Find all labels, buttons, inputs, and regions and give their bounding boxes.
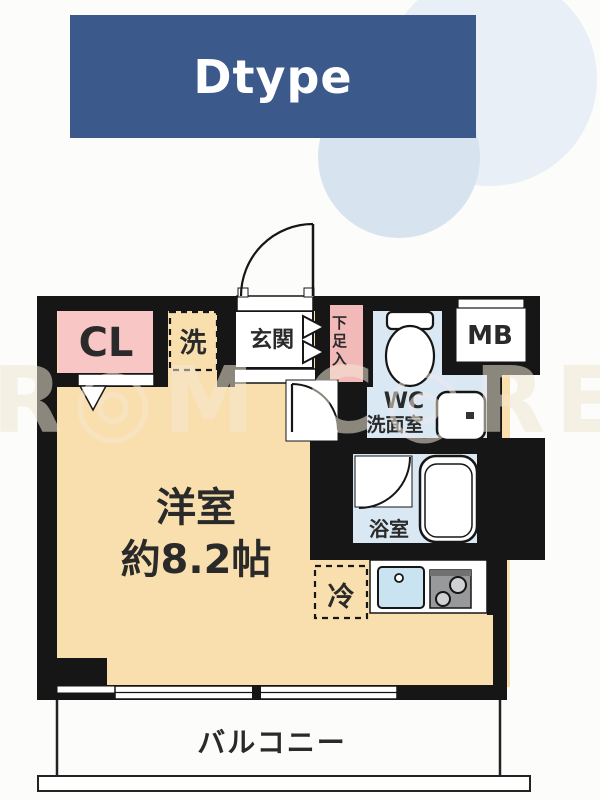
stove-icon <box>430 570 471 608</box>
label-bathroom: 浴室 <box>369 517 409 541</box>
floorplan-drawing: CL 洗 玄関 下足入 WC 洗面室 MB 浴室 冷 洋室 約8.2帖 バルコニ… <box>0 0 600 800</box>
kitchen-sink-icon <box>378 567 424 608</box>
bathroom-door <box>355 456 412 508</box>
label-main-room-size: 約8.2帖 <box>121 537 272 583</box>
watermark-text: R◎M C◎RE <box>0 347 600 454</box>
label-balcony: バルコニー <box>197 726 346 759</box>
entrance-door-swing-arc <box>241 224 313 296</box>
label-main-room: 洋室 <box>156 485 236 531</box>
label-fridge: 冷 <box>328 582 355 613</box>
bathtub-icon <box>420 456 477 542</box>
kitchen-counter <box>370 560 487 613</box>
meter-box-door <box>458 299 524 308</box>
entrance-door <box>237 224 314 311</box>
floorplan-page: { "title": { "label": "Dtype", "bg_color… <box>0 0 600 800</box>
